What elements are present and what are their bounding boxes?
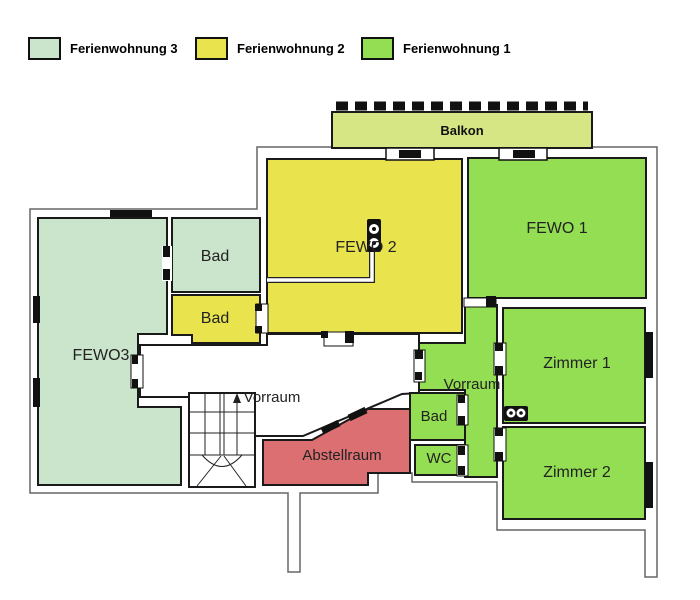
window-icon <box>110 210 152 217</box>
room-bad-top-label: Bad <box>201 248 229 265</box>
door-icon <box>457 395 468 425</box>
window-icon <box>645 462 653 508</box>
door-icon <box>255 304 268 333</box>
room-vorraum-main-label: Vorraum <box>244 389 301 406</box>
staircase-icon <box>189 393 255 487</box>
door-icon <box>494 428 506 461</box>
door-icon <box>162 246 172 281</box>
door-icon <box>494 343 506 375</box>
floorplan-drawing: Balkon FEWO3 Bad Bad FEWO 2 FEWO 1 Vorra… <box>0 0 700 600</box>
room-balkon-label: Balkon <box>440 123 483 138</box>
room-abstellraum-label: Abstellraum <box>302 447 381 464</box>
room-bad-right-label: Bad <box>421 408 448 425</box>
power-outlet-icon <box>504 406 528 421</box>
room-zimmer1-label: Zimmer 1 <box>543 355 611 372</box>
floorplan-page: Ferienwohnung 3 Ferienwohnung 2 Ferienwo… <box>0 0 700 600</box>
window-icon <box>499 148 547 160</box>
room-fewo2-label: FEWO 2 <box>335 239 396 256</box>
room-vorraum-right-label: Vorraum <box>444 376 501 393</box>
door-icon <box>457 445 468 476</box>
room-bad-mid-label: Bad <box>201 310 229 327</box>
door-icon <box>464 296 496 307</box>
window-icon <box>645 332 653 378</box>
room-zimmer2-label: Zimmer 2 <box>543 464 611 481</box>
room-fewo3-label: FEWO3 <box>73 347 130 364</box>
window-icon <box>33 296 40 323</box>
window-icon <box>33 378 40 407</box>
door-icon <box>414 350 425 382</box>
room-fewo1-label: FEWO 1 <box>526 220 587 237</box>
window-icon <box>386 148 434 160</box>
door-icon <box>131 355 143 388</box>
room-wc-label: WC <box>427 450 452 467</box>
door-icon <box>321 331 354 346</box>
